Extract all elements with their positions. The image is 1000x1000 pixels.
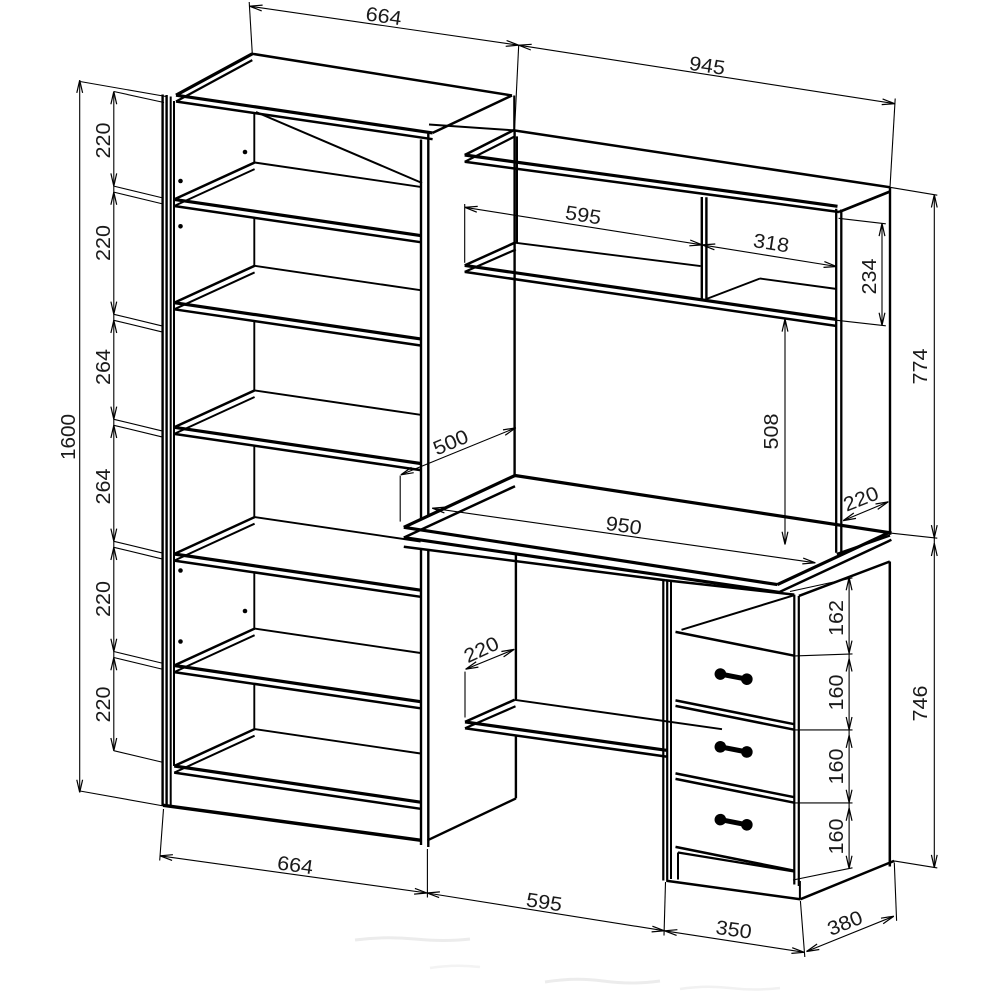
- svg-text:162: 162: [826, 600, 848, 636]
- svg-text:220: 220: [93, 687, 115, 723]
- svg-text:220: 220: [93, 581, 115, 617]
- svg-text:264: 264: [93, 469, 115, 505]
- svg-text:220: 220: [93, 225, 115, 261]
- svg-text:220: 220: [93, 123, 115, 159]
- svg-text:160: 160: [826, 675, 848, 711]
- svg-text:774: 774: [910, 349, 932, 385]
- svg-text:1600: 1600: [58, 414, 80, 460]
- svg-text:160: 160: [826, 749, 848, 785]
- svg-text:160: 160: [826, 819, 848, 855]
- svg-text:264: 264: [93, 349, 115, 385]
- svg-text:508: 508: [761, 414, 783, 450]
- svg-text:234: 234: [859, 259, 881, 295]
- svg-text:746: 746: [910, 686, 932, 722]
